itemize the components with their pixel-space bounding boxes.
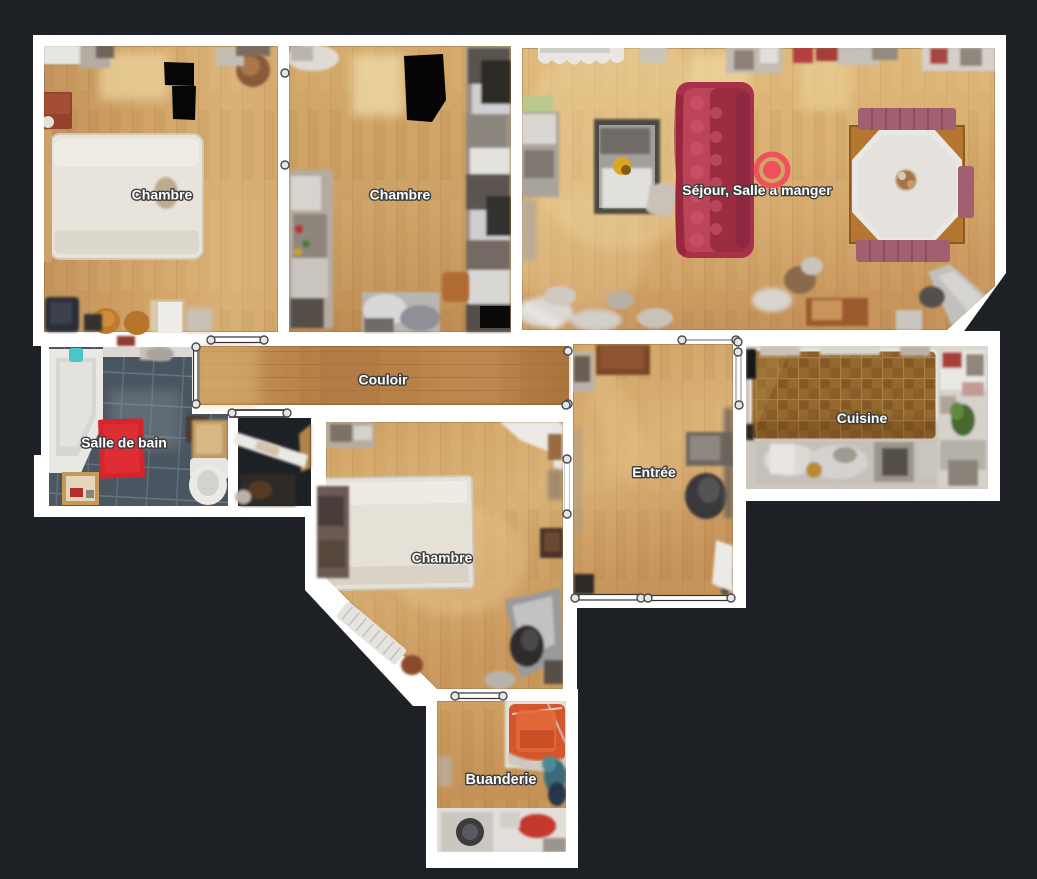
- svg-text:Chambre: Chambre: [412, 550, 473, 566]
- svg-text:Couloir: Couloir: [359, 372, 409, 388]
- svg-text:Salle de bain: Salle de bain: [81, 435, 167, 451]
- svg-text:Chambre: Chambre: [370, 187, 431, 203]
- svg-text:Chambre: Chambre: [132, 187, 193, 203]
- svg-text:Buanderie: Buanderie: [466, 772, 537, 788]
- svg-text:Entrée: Entrée: [632, 464, 676, 480]
- svg-text:Cuisine: Cuisine: [837, 410, 888, 426]
- svg-text:Séjour, Salle à manger: Séjour, Salle à manger: [682, 182, 832, 198]
